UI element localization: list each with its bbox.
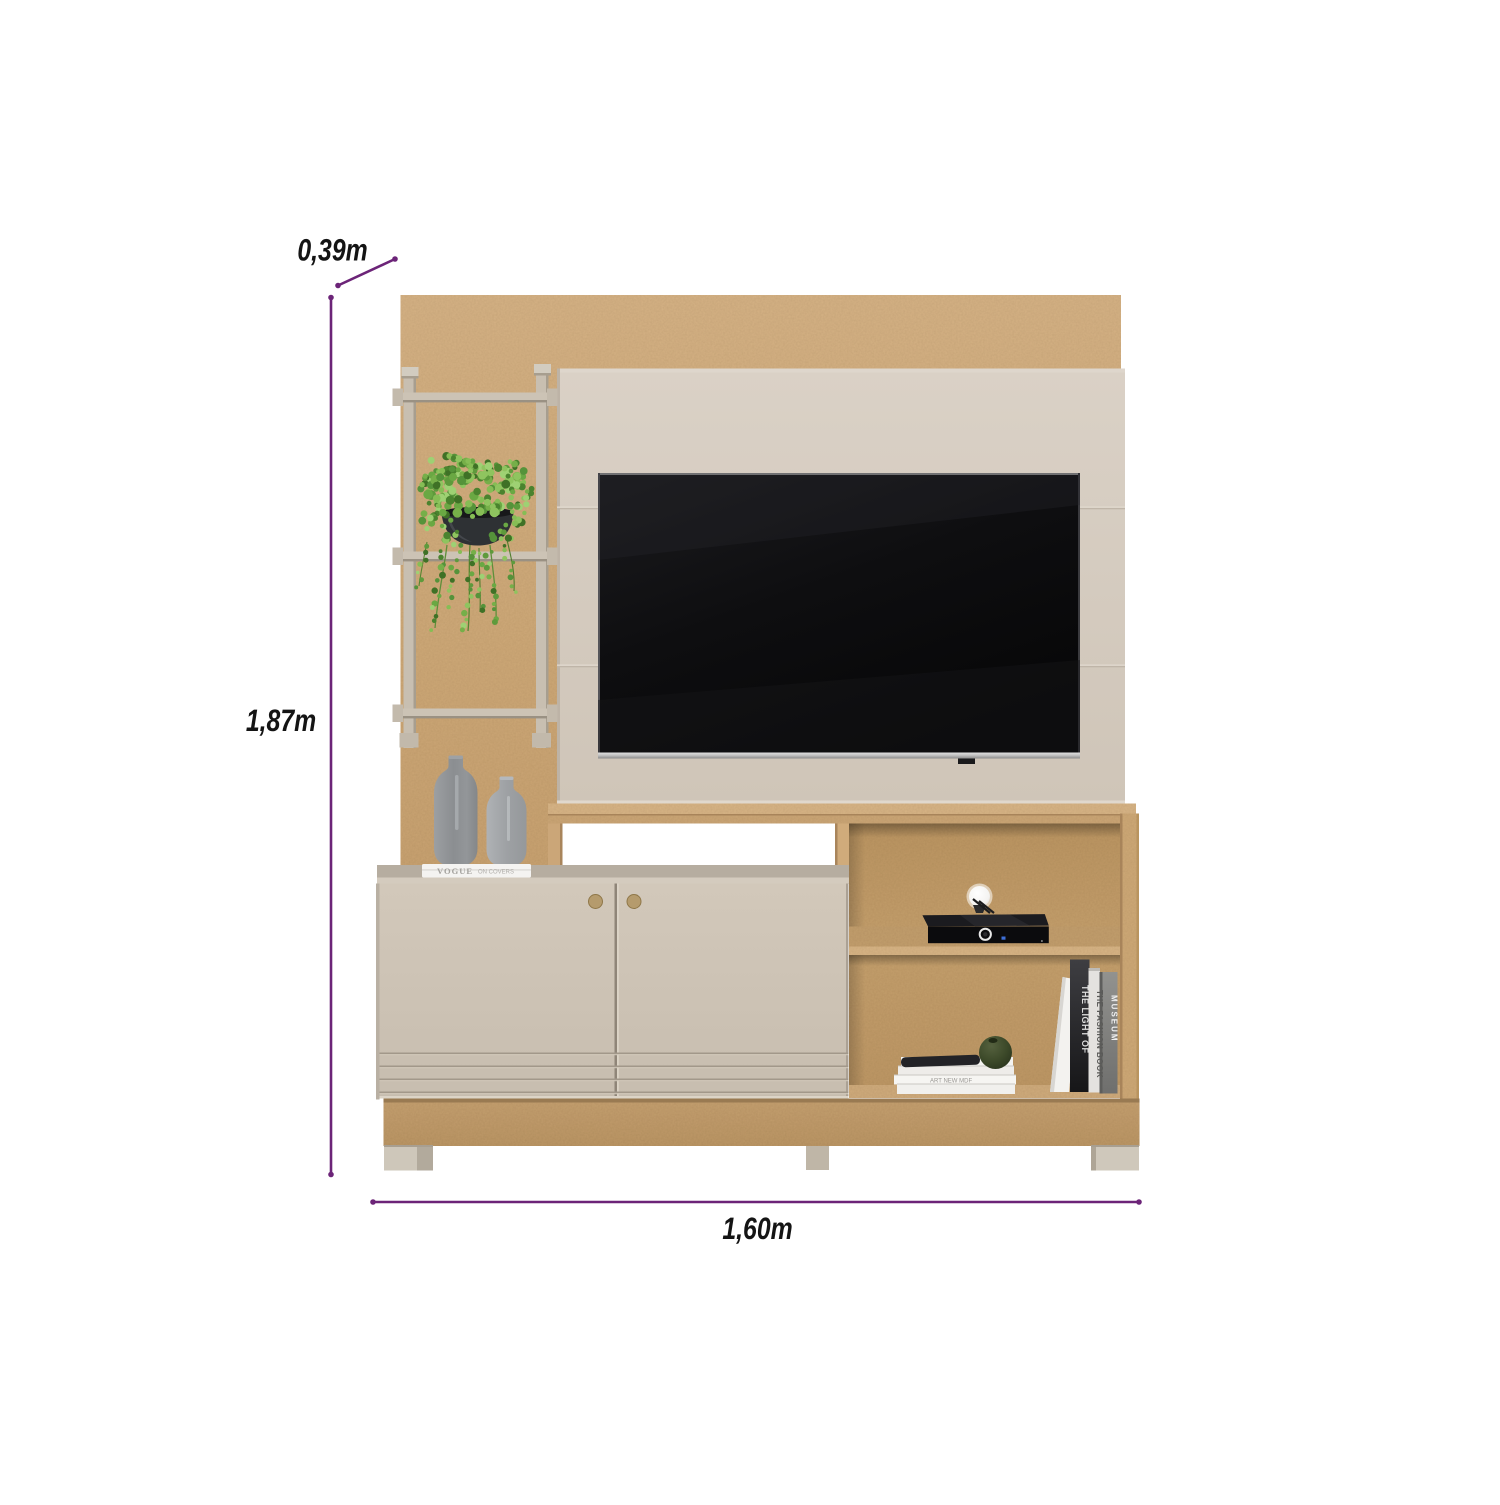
svg-text:1,60m: 1,60m	[722, 1211, 792, 1246]
svg-text:VOGUE: VOGUE	[437, 866, 473, 876]
svg-text:0,39m: 0,39m	[297, 233, 367, 268]
svg-text:MUSEUM: MUSEUM	[1110, 995, 1119, 1043]
svg-text:ART NEW MDF: ART NEW MDF	[930, 1079, 972, 1085]
svg-text:ON COVERS: ON COVERS	[478, 870, 514, 876]
svg-text:THE LIGHT OF: THE LIGHT OF	[1080, 985, 1090, 1054]
svg-text:THE FASHION BOOK: THE FASHION BOOK	[1095, 990, 1104, 1078]
svg-text:1,87m: 1,87m	[246, 703, 316, 738]
